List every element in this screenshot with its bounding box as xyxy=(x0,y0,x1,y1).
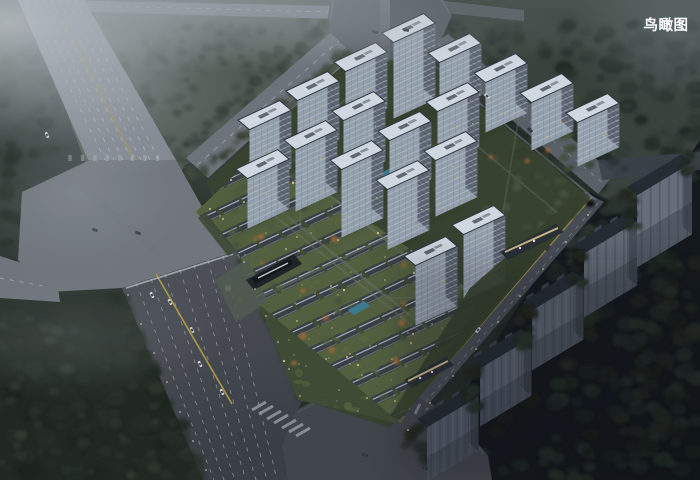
svg-text:鸟瞰图: 鸟瞰图 xyxy=(644,16,689,34)
